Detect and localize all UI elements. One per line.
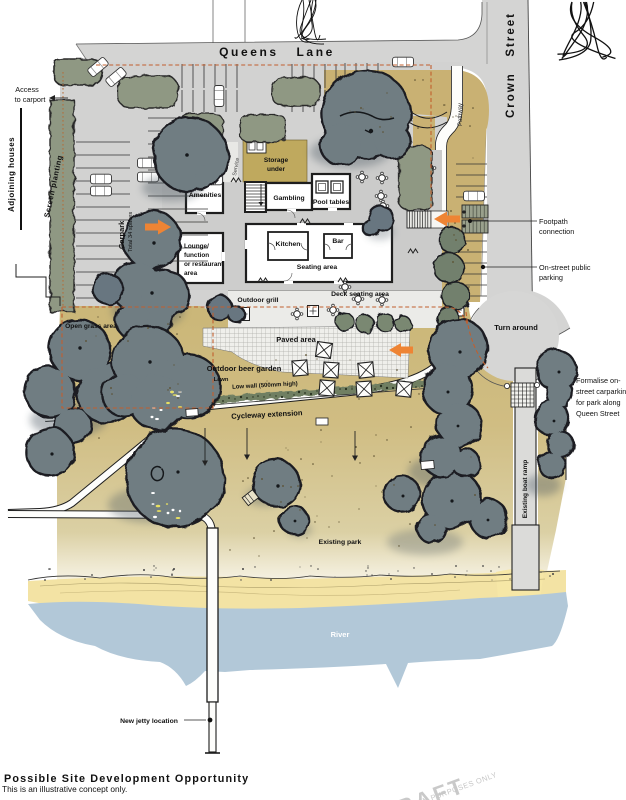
svg-text:Deck seating area: Deck seating area [331, 291, 389, 298]
svg-text:Formalise on-: Formalise on- [576, 376, 621, 385]
svg-text:Crown Street: Crown Street [505, 12, 517, 118]
svg-text:parking: parking [539, 273, 563, 282]
svg-text:Seating area: Seating area [297, 264, 338, 271]
svg-text:Queens Lane: Queens Lane [219, 45, 335, 59]
svg-text:Amenities: Amenities [189, 192, 222, 199]
svg-text:Turn around: Turn around [494, 323, 538, 332]
svg-text:Pool tables: Pool tables [313, 199, 349, 206]
svg-text:Open grass area: Open grass area [65, 323, 117, 330]
svg-text:connection: connection [539, 227, 574, 236]
svg-text:Adjoining houses: Adjoining houses [7, 137, 16, 212]
svg-text:or restaurant: or restaurant [184, 261, 224, 268]
svg-text:Total 34 spaces: Total 34 spaces [128, 212, 134, 252]
svg-text:New jetty location: New jetty location [120, 718, 178, 725]
svg-text:for park along: for park along [576, 398, 621, 407]
svg-text:Lawn: Lawn [214, 377, 229, 383]
svg-text:Lounge/: Lounge/ [184, 243, 209, 250]
svg-text:Outdoor grill: Outdoor grill [237, 297, 278, 304]
svg-text:Paved area: Paved area [276, 335, 316, 344]
svg-text:to carport: to carport [15, 95, 46, 104]
svg-text:On-street public: On-street public [539, 263, 591, 272]
svg-text:Kitchen: Kitchen [276, 241, 301, 248]
svg-text:street carparkin: street carparkin [576, 387, 626, 396]
svg-text:Storage: Storage [264, 157, 289, 164]
svg-text:area: area [184, 270, 198, 277]
svg-text:Footpath: Footpath [539, 217, 568, 226]
svg-text:Pathway: Pathway [458, 103, 464, 126]
svg-text:Outdoor beer garden: Outdoor beer garden [207, 364, 282, 373]
svg-text:Access: Access [15, 85, 39, 94]
svg-text:function: function [184, 252, 209, 259]
svg-text:Queen Street: Queen Street [576, 409, 619, 418]
svg-text:Carpark: Carpark [117, 220, 126, 249]
svg-text:Gambling: Gambling [273, 195, 304, 202]
svg-text:under: under [267, 166, 286, 173]
svg-text:River: River [331, 630, 350, 639]
svg-text:This is an illustrative concep: This is an illustrative concept only. [2, 784, 127, 794]
svg-text:Bar: Bar [332, 238, 344, 245]
svg-text:Existing park: Existing park [319, 539, 362, 546]
